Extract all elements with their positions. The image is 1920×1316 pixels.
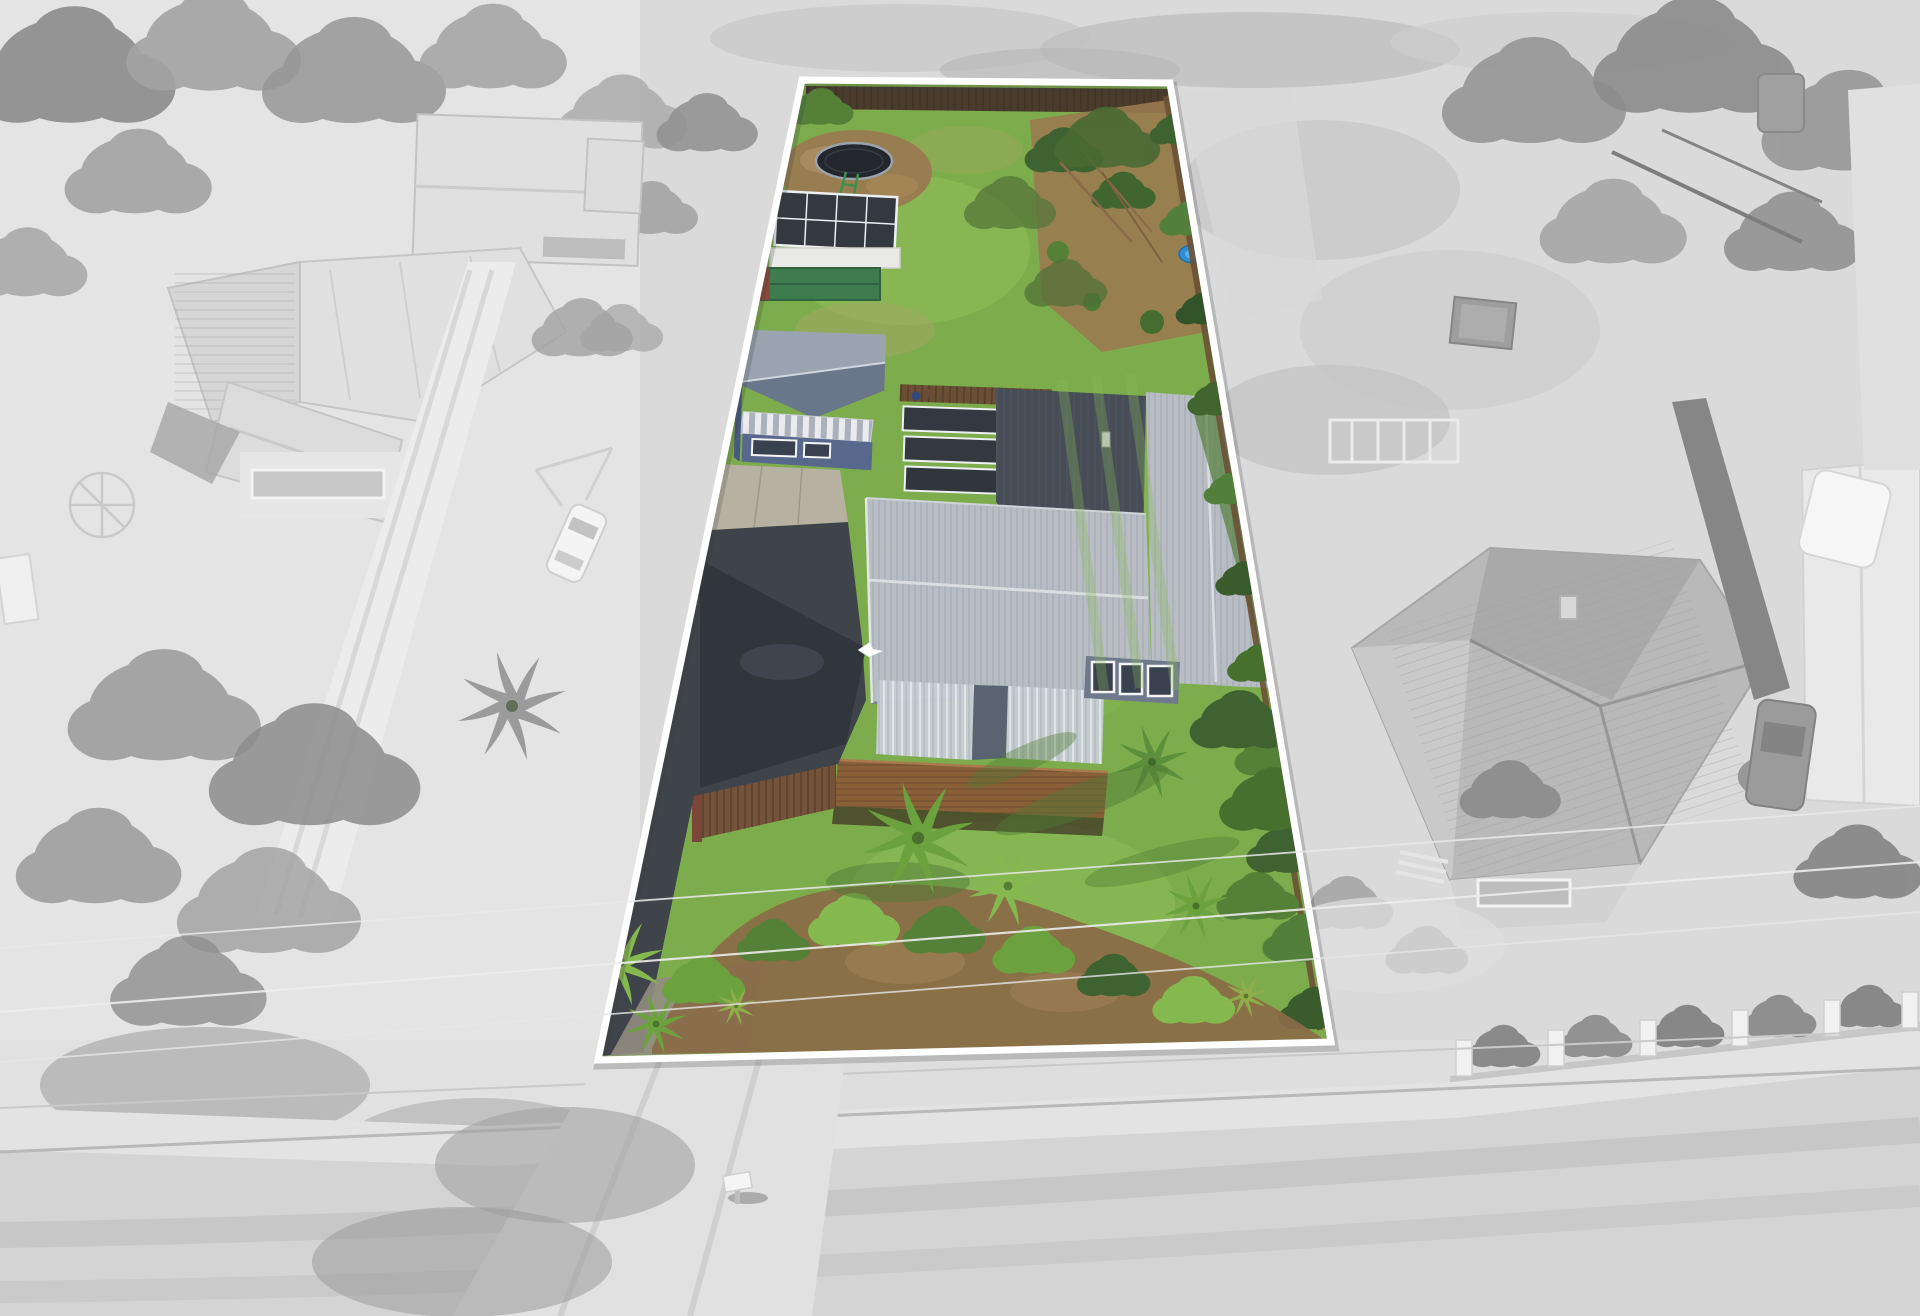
chimney xyxy=(1560,596,1577,619)
fence-post xyxy=(1824,1000,1840,1036)
aerial-photo-stage xyxy=(0,0,1920,1316)
tree-shadow xyxy=(312,1207,612,1316)
glasshouse xyxy=(775,191,898,251)
fence-post xyxy=(1456,1040,1472,1076)
rotary-clothesline xyxy=(70,473,134,537)
garage-window xyxy=(752,439,797,457)
glass-panel-row xyxy=(904,436,1007,464)
fence-post xyxy=(1732,1010,1748,1046)
aerial-photo xyxy=(0,0,1920,1316)
concrete-apron xyxy=(712,464,848,530)
glass-panel-row xyxy=(903,406,1004,433)
tree-shadow xyxy=(435,1107,695,1223)
fence-post xyxy=(1902,992,1918,1028)
small-grey-shed xyxy=(584,139,644,214)
small-shrub xyxy=(1140,310,1164,334)
garage-door xyxy=(543,237,626,260)
glasshouse-base-wall xyxy=(770,248,900,268)
van-roof xyxy=(1458,304,1507,343)
glass-panel-row xyxy=(905,466,1008,494)
fence-post xyxy=(1640,1020,1656,1056)
garage-window xyxy=(804,443,830,458)
person-sitting xyxy=(912,392,921,401)
letterbox-shadow xyxy=(728,1192,768,1204)
green-shed xyxy=(760,268,880,300)
veranda-panel-streaks xyxy=(876,680,974,760)
fence-end-post xyxy=(692,792,702,842)
car-glass xyxy=(1760,721,1806,757)
person-sitting xyxy=(925,389,933,397)
fence-post xyxy=(1548,1030,1564,1066)
window-band xyxy=(252,470,384,498)
dark-van xyxy=(1450,297,1516,349)
parked-car-top-right xyxy=(1758,74,1804,132)
driveway-sheen xyxy=(740,644,824,680)
veranda-gap xyxy=(972,685,1008,760)
